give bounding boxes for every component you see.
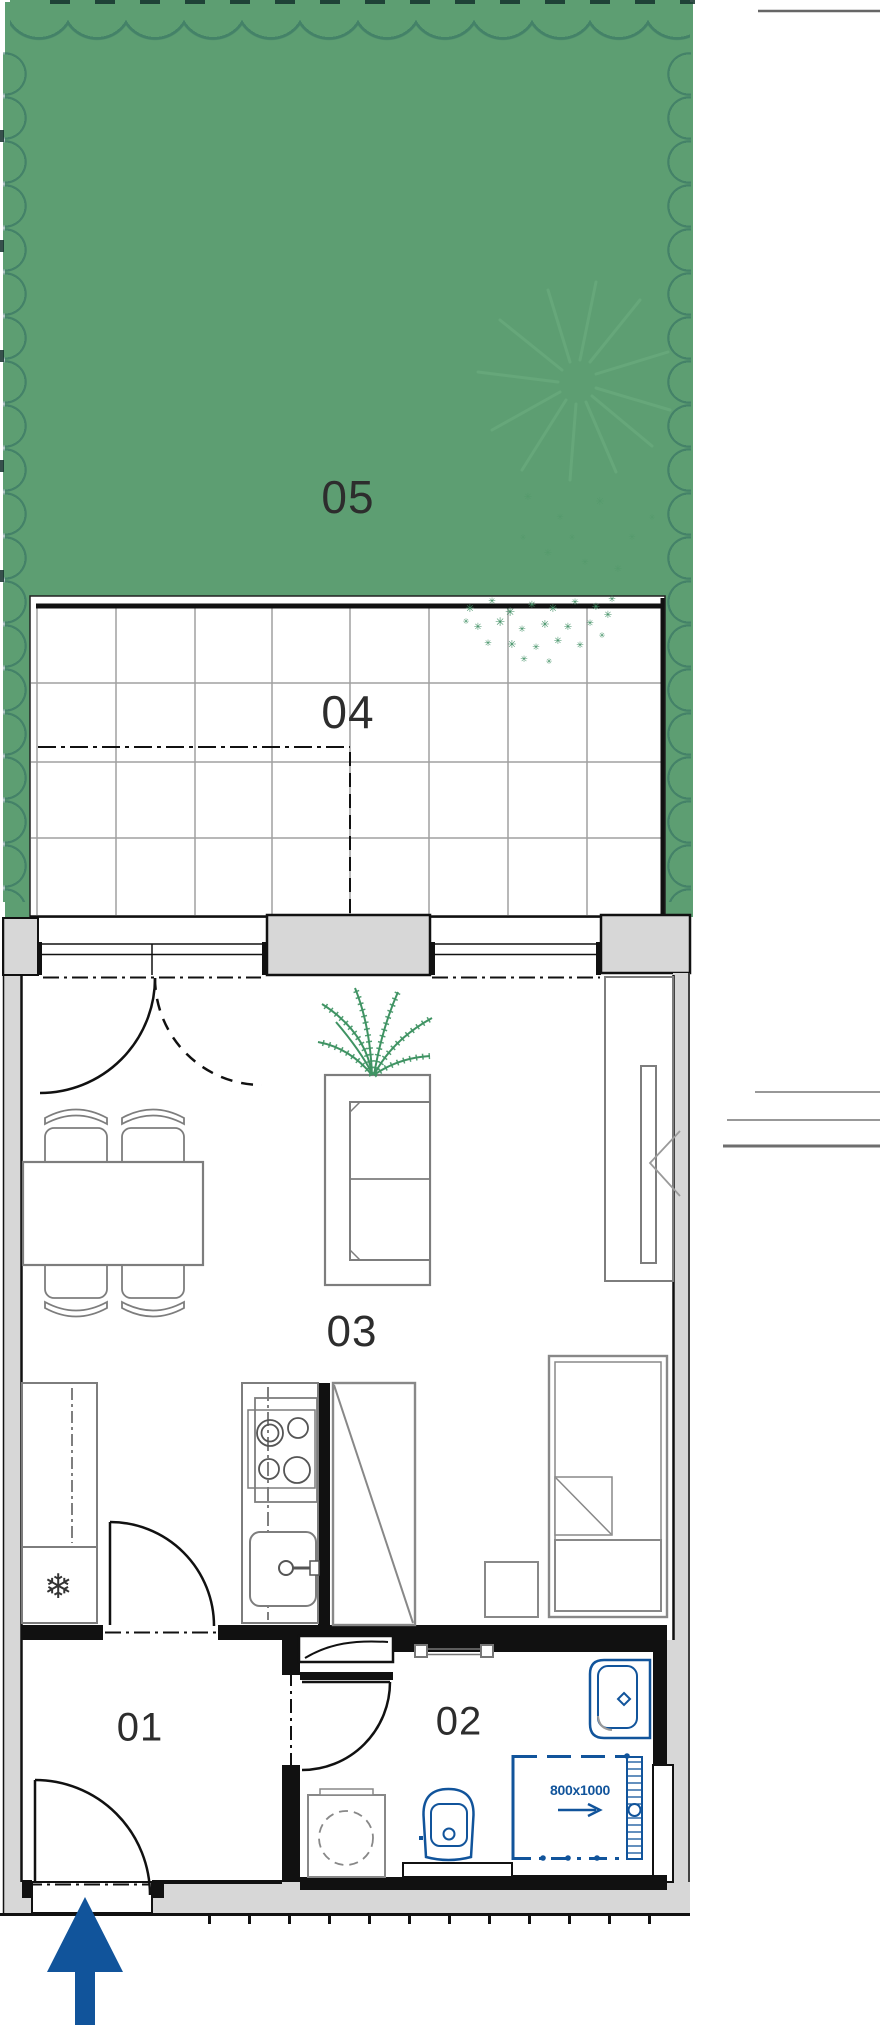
shower (513, 1753, 642, 1861)
kitchen-sink (250, 1532, 319, 1606)
tv-cabinet (605, 977, 680, 1281)
wall-hatch-ticks (208, 1916, 651, 1924)
svg-text:✳: ✳ (465, 602, 474, 615)
bed-pillow (555, 1540, 661, 1611)
svg-text:✳: ✳ (604, 610, 612, 621)
svg-text:✳: ✳ (581, 558, 589, 568)
svg-text:✳: ✳ (608, 595, 616, 605)
entrance-door (22, 1780, 164, 1913)
svg-text:✳: ✳ (540, 618, 549, 631)
wall-niche-shelf (299, 1636, 393, 1662)
svg-text:✳: ✳ (576, 641, 584, 651)
bed (549, 1356, 667, 1617)
svg-text:✳: ✳ (586, 619, 594, 629)
service-duct (653, 1765, 673, 1882)
living-room-window (430, 942, 601, 978)
svg-text:✳: ✳ (569, 533, 576, 542)
svg-text:✳: ✳ (595, 495, 604, 508)
sofa (325, 1075, 430, 1285)
svg-text:✳: ✳ (544, 548, 552, 559)
fern-plant-icon (318, 988, 432, 1075)
svg-text:✳: ✳ (548, 602, 557, 615)
svg-text:✳: ✳ (488, 597, 496, 607)
toilet (419, 1789, 474, 1860)
svg-text:✳: ✳ (505, 605, 515, 619)
dining-set (23, 1110, 203, 1317)
svg-text:✳: ✳ (463, 617, 470, 626)
svg-text:✳: ✳ (592, 602, 600, 613)
washing-machine (308, 1789, 385, 1877)
fridge-counter: ❄ (22, 1383, 97, 1623)
site-boundary-lines (723, 11, 880, 1146)
bathtub (590, 1660, 650, 1738)
svg-text:✳: ✳ (614, 564, 622, 575)
svg-text:✳: ✳ (520, 655, 528, 665)
svg-text:✳: ✳ (518, 625, 526, 635)
door-swing-arc (40, 978, 155, 1093)
bathroom-door (302, 1682, 390, 1770)
dining-table (23, 1162, 203, 1265)
svg-text:✳: ✳ (554, 636, 562, 647)
room-label-05: 05 (321, 470, 374, 524)
svg-text:✳: ✳ (556, 513, 564, 523)
svg-text:✳: ✳ (571, 598, 579, 608)
terrace-area: ✳✳ ✳✳ ✳✳ ✳✳ ✳✳ ✳✳ ✳✳ ✳✳ ✳✳ ✳✳ ✳✳ ✳✳ (30, 595, 665, 917)
svg-text:✳: ✳ (524, 492, 532, 503)
svg-text:✳: ✳ (649, 513, 656, 522)
shower-size-label: 800x1000 (550, 1782, 610, 1798)
wardrobe (333, 1383, 415, 1625)
entrance-arrow-icon (47, 1897, 123, 2025)
svg-text:✳: ✳ (628, 533, 636, 543)
wall-pier (267, 915, 430, 975)
svg-text:✳: ✳ (599, 631, 606, 640)
floor-plan-canvas: ✳✳ ✳✳ ✳✳ ✳✳ ✳✳ ✳✳ ✳✳ ✳✳ ✳✳ ✳✳ ✳✳ ✳✳ (0, 0, 880, 2025)
tv-screen (641, 1066, 656, 1263)
svg-text:✳: ✳ (532, 643, 540, 653)
snowflake-icon: ❄ (44, 1567, 73, 1607)
nightstand (485, 1562, 538, 1617)
interior-door-living (105, 1522, 216, 1633)
room-label-04: 04 (321, 685, 374, 739)
svg-text:✳: ✳ (520, 533, 527, 542)
room-label-03: 03 (327, 1307, 378, 1357)
svg-text:✳: ✳ (564, 622, 572, 633)
kitchen-block (242, 1383, 330, 1625)
svg-text:✳: ✳ (546, 657, 553, 666)
balcony-door (38, 942, 267, 1093)
svg-text:✳: ✳ (484, 639, 492, 649)
svg-text:✳: ✳ (528, 600, 536, 611)
room-label-02: 02 (436, 1700, 483, 1745)
svg-text:✳: ✳ (474, 622, 482, 633)
svg-text:✳: ✳ (495, 615, 505, 629)
room-label-01: 01 (117, 1706, 164, 1751)
svg-text:✳: ✳ (507, 638, 516, 651)
